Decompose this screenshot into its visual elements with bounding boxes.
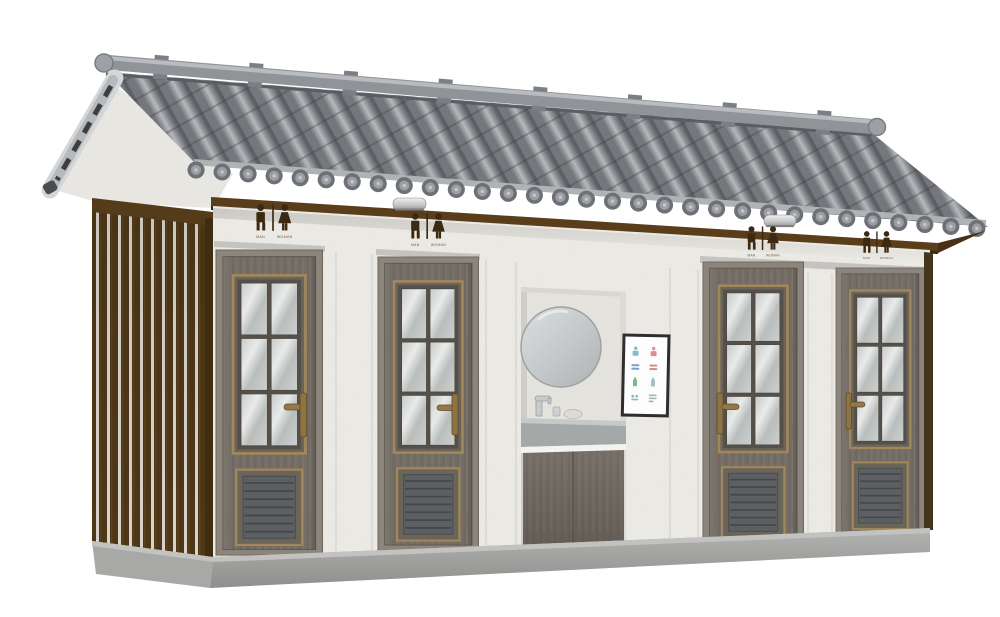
sink-cabinet [523, 450, 624, 549]
info-poster [621, 333, 671, 417]
render-canvas: MAN WOMAN [0, 0, 1000, 617]
sink-counter [521, 418, 626, 447]
washstand-alcove [521, 287, 626, 556]
restroom-building-render: MAN WOMAN [0, 0, 1000, 617]
wall-lamp-2 [764, 215, 796, 227]
restroom-door-2 [378, 257, 479, 550]
round-mirror [521, 307, 601, 387]
ridge-end-cap-left [95, 54, 113, 72]
wall-lamp-1 [393, 198, 426, 211]
ridge-end-cap-right [869, 119, 886, 136]
side-slat-wall [92, 198, 215, 557]
toiletry-bottle [553, 407, 560, 416]
corner-post-right [924, 252, 933, 530]
soap-dish [564, 410, 582, 419]
